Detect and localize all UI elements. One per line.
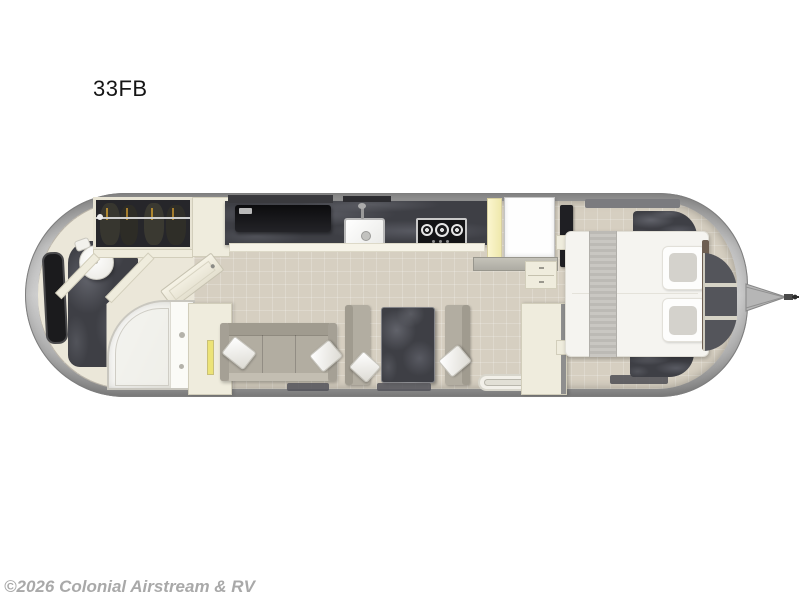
bed-pillow-accent [669,306,697,335]
trailer-body [25,193,748,397]
storage-divider [705,283,737,287]
storage-divider [705,316,737,320]
dinette-table [381,307,435,383]
floorplan-image: 33FB [0,0,800,600]
bench-backrest [462,305,470,385]
bed-pillow [662,246,706,290]
hitch-tongue [744,277,800,319]
closet-rod [96,217,190,219]
shower-control [179,332,185,338]
bed-pillow-accent [669,253,697,282]
drawer-seam [528,275,554,276]
burner [451,224,463,236]
garment [144,203,164,245]
drawer-pull [539,281,544,283]
sink-faucet-head [358,203,366,209]
shower-control [179,364,184,369]
sofa-cushion-seam [295,335,296,373]
burner [435,223,449,237]
hitch-a-frame [746,284,786,311]
overhead-cabinet [228,195,333,203]
bedroom-overhead-locker [585,199,680,208]
garment [166,205,186,245]
hitch-jack [793,295,798,300]
shower-glass-door [115,308,169,386]
tv-console [235,205,331,232]
bed-pillow [662,298,706,342]
garment [100,203,120,245]
kitchen-lower-cabinets [229,243,485,252]
bedroom-dresser-drawers [525,261,557,289]
drawer-pull [539,267,544,269]
console-detail [239,208,252,214]
range-hood-vent [343,196,391,202]
burner [421,224,433,236]
sink-drain [361,231,371,241]
bench-backrest [345,305,353,385]
closet-rod-end [97,214,103,220]
floor-mat [287,383,329,391]
floorplan-model-label: 33FB [93,76,148,102]
hitch-coupler [784,294,793,300]
sofa-front-edge [229,373,328,381]
front-window [42,251,69,344]
sofa-cushion-seam [262,335,263,373]
refrigerator [504,197,555,260]
light-strip [487,198,502,258]
sofa-backrest [228,323,329,336]
garment [120,205,138,245]
floor-mat [377,383,431,391]
wardrobe [93,197,193,250]
pantry-handle [207,340,214,375]
bed-runner-blanket [589,231,617,357]
dealer-watermark: ©2026 Colonial Airstream & RV [4,577,255,597]
bed [565,231,709,357]
